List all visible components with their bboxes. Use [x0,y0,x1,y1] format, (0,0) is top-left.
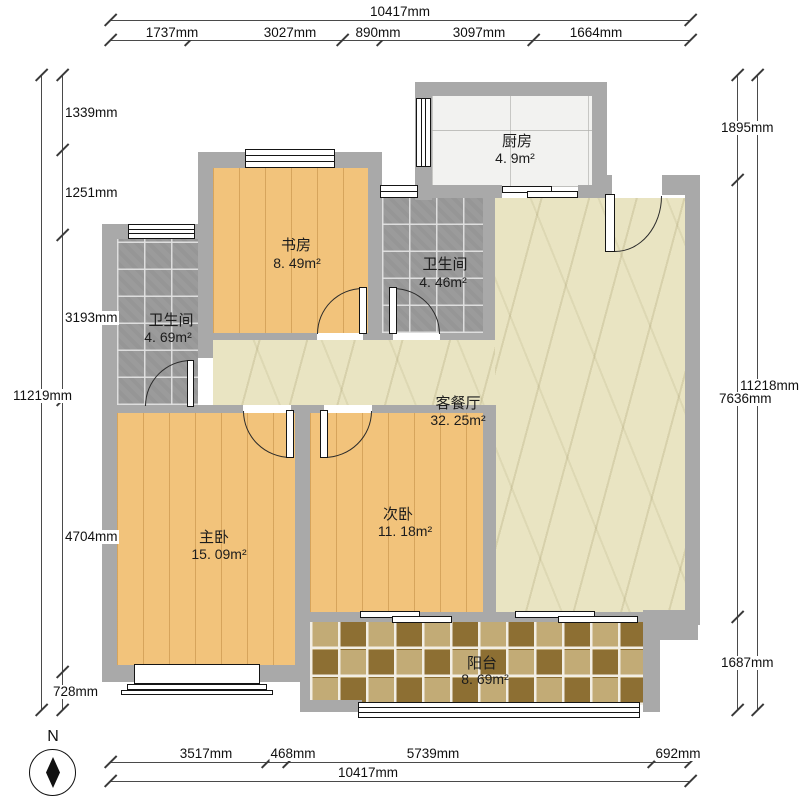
window-study [245,149,335,168]
compass-north-label: N [47,729,59,745]
bay-window-master-frame3 [121,690,273,695]
room-label-living-dining: 客餐厅 [435,396,480,413]
dim-top-seg-5: 1664mm [569,26,624,40]
wall-balcony-left [300,612,310,712]
wall-study-bottom-jamb [363,333,382,340]
room-area-study: 8. 49m² [273,256,320,271]
dim-left-seg-3: 3193mm [64,311,119,325]
wall-bottomright-corner [643,610,698,640]
dim-line-bottom-total [110,781,690,782]
dim-left-seg-2: 1251mm [64,186,119,200]
dim-right-seg-1: 1895mm [720,121,775,135]
room-area-bedroom2: 11. 18m² [378,524,432,539]
wall-balcony-bottomleft [300,700,362,712]
sliding-door-living-balcony-b [558,616,638,623]
wall-study-left [198,152,213,358]
window-kitchen-left [416,98,431,167]
room-area-bath-left: 4. 69m² [144,330,191,345]
wall-topleft-corner [102,224,128,239]
door-leaf-master [286,410,294,458]
wall-right-outer [685,175,700,625]
room-area-kitchen: 4. 9m² [495,151,535,166]
wall-bath-mid-bottom-b [440,333,495,340]
dim-left-seg-4: 4704mm [64,530,119,544]
door-leaf-bedroom2 [320,410,328,458]
window-bath-mid [380,185,418,198]
wall-hall-bottom-a [102,405,243,413]
dim-left-seg-1: 1339mm [64,106,119,120]
dim-bottom-total: 10417mm [337,766,399,780]
dim-top-seg-2: 3027mm [263,26,318,40]
door-leaf-bath-mid [389,287,397,334]
wall-study-bottom [213,333,317,340]
wall-bath-mid-bottom-a [382,333,393,340]
bay-window-master [134,664,260,684]
dim-top-seg-3: 890mm [354,26,401,40]
dim-line-bottom-segments [110,762,690,763]
wall-study-right [368,152,382,340]
door-leaf-entry [605,194,615,252]
room-area-bath-mid: 4. 46m² [419,275,466,290]
dim-top-seg-1: 1737mm [145,26,200,40]
dim-bottom-seg-4: 692mm [654,747,701,761]
room-label-bath-left: 卫生间 [148,313,193,330]
wall-balcony-right [643,640,660,712]
room-label-study: 书房 [281,238,311,255]
dim-line-top-total [110,20,690,21]
window-balcony [358,702,640,718]
wall-left-outer [102,224,117,682]
sliding-door-bedroom2-balcony-b [392,616,452,623]
dim-right-seg-3: 1687mm [720,656,775,670]
dim-bottom-seg-2: 468mm [269,747,316,761]
sliding-door-kitchen-b [527,191,578,198]
dim-line-top-segments [110,40,690,41]
door-leaf-bath-left [187,360,194,407]
room-area-balcony: 8. 69m² [461,672,508,687]
dim-right-seg-2: 7636mm [718,392,773,406]
dim-bottom-seg-1: 3517mm [179,747,234,761]
dim-top-seg-4: 3097mm [452,26,507,40]
floor-plan-canvas: 厨房 4. 9m² 书房 8. 49m² 卫生间 4. 46m² 卫生间 4. … [0,0,800,800]
wall-bath-left-door-jamb [198,340,213,358]
door-leaf-study [359,287,367,334]
dim-left-seg-5: 728mm [52,685,99,699]
room-label-kitchen: 厨房 [502,134,532,151]
room-label-bath-mid: 卫生间 [422,257,467,274]
window-bath-left [128,224,195,239]
room-area-living-dining: 32. 25m² [430,413,485,428]
wall-entry-left [600,175,612,195]
room-label-master: 主卧 [199,530,229,547]
dim-left-total: 11219mm [12,389,73,403]
room-label-bedroom2: 次卧 [383,507,413,524]
wall-bedroom2-living [483,405,496,615]
dim-right-total: 11218mm [739,379,800,393]
wall-kitchen-top [415,82,607,96]
wall-bath-mid-right [483,198,495,340]
dim-top-total: 10417mm [369,5,431,19]
room-area-master: 15. 09m² [191,547,246,562]
living-dining-floor [495,198,685,612]
dim-bottom-seg-3: 5739mm [406,747,461,761]
